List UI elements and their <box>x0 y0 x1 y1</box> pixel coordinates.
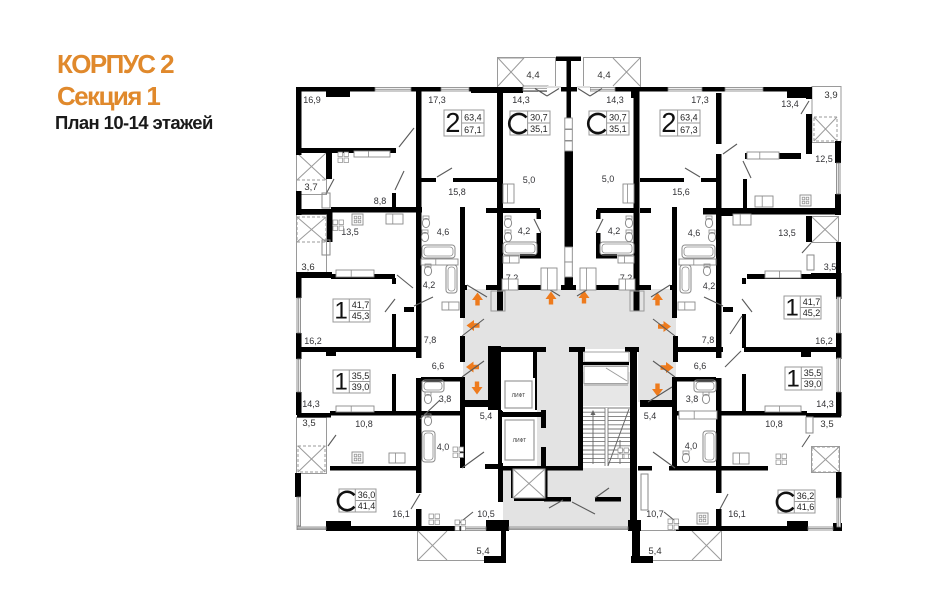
svg-text:16,1: 16,1 <box>728 509 746 519</box>
svg-text:3,7: 3,7 <box>304 182 317 193</box>
svg-text:30,7: 30,7 <box>530 113 548 123</box>
svg-text:36,0: 36,0 <box>358 490 376 500</box>
svg-text:1: 1 <box>785 295 798 322</box>
svg-text:4,6: 4,6 <box>688 228 701 238</box>
svg-text:1: 1 <box>334 298 347 325</box>
svg-text:4,2: 4,2 <box>703 281 716 291</box>
svg-text:1: 1 <box>786 366 799 393</box>
svg-text:14,3: 14,3 <box>512 95 530 105</box>
svg-text:4,4: 4,4 <box>597 70 610 81</box>
svg-text:5,4: 5,4 <box>648 546 661 557</box>
svg-text:Секция 1: Секция 1 <box>57 81 160 111</box>
svg-text:41,4: 41,4 <box>358 501 376 511</box>
svg-text:7,8: 7,8 <box>424 335 437 345</box>
svg-text:3,6: 3,6 <box>301 262 314 273</box>
svg-text:5,4: 5,4 <box>644 411 657 421</box>
svg-text:16,1: 16,1 <box>392 509 410 519</box>
svg-text:План 10-14 этажей: План 10-14 этажей <box>55 112 213 133</box>
svg-text:36,2: 36,2 <box>797 491 815 501</box>
svg-text:2: 2 <box>445 107 460 138</box>
svg-text:45,2: 45,2 <box>803 308 821 318</box>
svg-text:4,2: 4,2 <box>518 226 531 236</box>
svg-text:67,3: 67,3 <box>680 125 698 135</box>
svg-text:8,8: 8,8 <box>374 196 387 206</box>
svg-text:13,5: 13,5 <box>778 228 796 238</box>
svg-text:35,5: 35,5 <box>804 368 822 378</box>
svg-text:14,3: 14,3 <box>816 399 834 409</box>
svg-text:5,4: 5,4 <box>476 546 489 557</box>
svg-text:4,2: 4,2 <box>608 226 621 236</box>
svg-text:5,0: 5,0 <box>523 175 536 185</box>
svg-text:16,9: 16,9 <box>303 95 321 105</box>
svg-text:16,2: 16,2 <box>815 336 833 346</box>
svg-text:15,6: 15,6 <box>672 187 690 197</box>
svg-text:6,6: 6,6 <box>432 361 445 371</box>
svg-text:4,2: 4,2 <box>423 280 436 290</box>
svg-text:14,3: 14,3 <box>302 399 320 409</box>
svg-text:5,4: 5,4 <box>480 411 493 421</box>
svg-text:10,5: 10,5 <box>477 509 495 519</box>
svg-text:45,3: 45,3 <box>352 311 370 321</box>
svg-text:15,8: 15,8 <box>448 187 466 197</box>
svg-text:17,3: 17,3 <box>428 95 446 105</box>
svg-text:63,4: 63,4 <box>680 112 698 122</box>
svg-text:2: 2 <box>661 107 676 138</box>
svg-text:35,1: 35,1 <box>530 124 548 134</box>
svg-text:5,0: 5,0 <box>602 174 615 184</box>
svg-text:4,0: 4,0 <box>685 441 698 451</box>
svg-text:17,3: 17,3 <box>691 95 709 105</box>
svg-text:41,6: 41,6 <box>797 502 815 512</box>
svg-text:4,0: 4,0 <box>437 442 450 452</box>
svg-text:3,5: 3,5 <box>302 418 315 429</box>
svg-text:1: 1 <box>334 369 347 396</box>
svg-text:4,4: 4,4 <box>526 70 539 81</box>
svg-text:13,4: 13,4 <box>781 99 799 109</box>
svg-text:13,5: 13,5 <box>341 227 359 237</box>
svg-text:39,0: 39,0 <box>804 379 822 389</box>
svg-text:35,1: 35,1 <box>609 124 627 134</box>
svg-text:35,5: 35,5 <box>352 371 370 381</box>
svg-text:63,4: 63,4 <box>464 112 482 122</box>
svg-text:41,7: 41,7 <box>352 300 370 310</box>
svg-text:ЛИФТ: ЛИФТ <box>512 393 525 399</box>
svg-text:67,1: 67,1 <box>464 125 482 135</box>
svg-text:6,6: 6,6 <box>694 361 707 371</box>
svg-text:3,8: 3,8 <box>439 394 452 404</box>
svg-text:16,2: 16,2 <box>304 336 322 346</box>
svg-text:3,5: 3,5 <box>820 419 833 430</box>
svg-text:30,7: 30,7 <box>609 113 627 123</box>
svg-text:ЛИФТ: ЛИФТ <box>513 438 526 444</box>
svg-text:14,3: 14,3 <box>606 95 624 105</box>
svg-text:12,5: 12,5 <box>815 154 833 164</box>
svg-text:10,8: 10,8 <box>765 419 783 429</box>
svg-text:7,8: 7,8 <box>702 335 715 345</box>
svg-text:3,9: 3,9 <box>824 90 837 101</box>
svg-text:КОРПУС 2: КОРПУС 2 <box>57 49 174 79</box>
svg-text:3,5: 3,5 <box>824 262 837 272</box>
svg-text:10,8: 10,8 <box>355 419 373 429</box>
svg-text:41,7: 41,7 <box>803 297 821 307</box>
svg-text:10,7: 10,7 <box>646 509 664 519</box>
svg-text:4,6: 4,6 <box>437 227 450 237</box>
svg-text:3,8: 3,8 <box>686 394 699 404</box>
svg-text:39,0: 39,0 <box>352 382 370 392</box>
